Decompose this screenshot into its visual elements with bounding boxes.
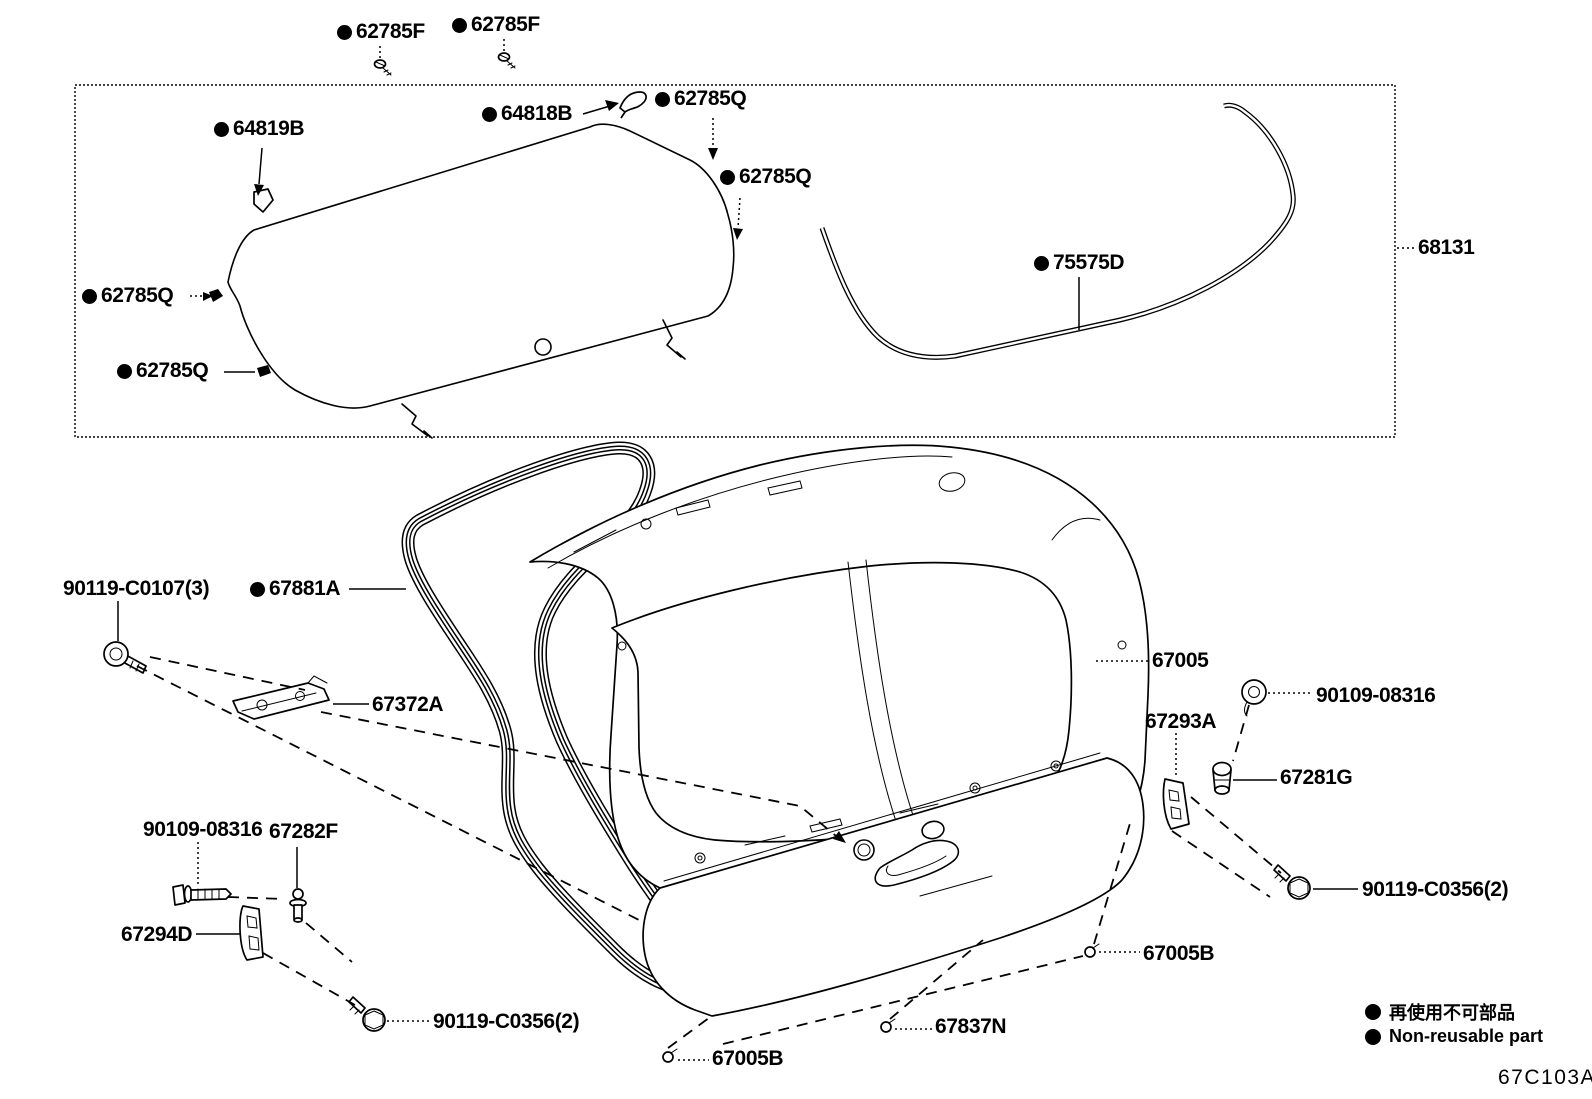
part-label-62785Q-left-upper[interactable]: 62785Q	[82, 284, 173, 308]
part-label-90119-C0107[interactable]: 90119-C0107(3)	[63, 577, 209, 601]
non-reusable-dot	[214, 122, 229, 137]
non-reusable-dot	[1365, 1029, 1381, 1045]
part-number: 75575D	[1053, 251, 1124, 275]
part-number: 67005B	[712, 1047, 783, 1071]
part-number: 62785Q	[739, 165, 811, 189]
non-reusable-dot	[1365, 1004, 1381, 1020]
non-reusable-dot	[250, 582, 265, 597]
non-reusable-dot	[720, 170, 735, 185]
screw-62785F-icon	[375, 53, 516, 75]
non-reusable-dot	[337, 25, 352, 40]
bolt-90119-C0356-left-icon	[349, 997, 385, 1031]
part-number: 67005B	[1143, 942, 1214, 966]
bolt-90109-08316-icon	[173, 885, 231, 905]
hinge-67294D	[240, 906, 263, 960]
part-number: 67281G	[1280, 766, 1352, 790]
non-reusable-dot	[482, 107, 497, 122]
part-number: 67005	[1152, 649, 1208, 673]
back-window-moulding	[822, 105, 1293, 357]
bolt-90119-C0356-right-icon	[1274, 865, 1310, 899]
part-number: 67881A	[269, 577, 340, 601]
non-reusable-dot	[82, 289, 97, 304]
legend-text-en: Non-reusable part	[1389, 1026, 1543, 1047]
clip-67837N-icon	[881, 1019, 895, 1032]
part-label-62785Q-top[interactable]: 62785Q	[655, 87, 746, 111]
part-label-90109-08316-left[interactable]: 90109-08316	[143, 818, 262, 842]
clip-67005B-right-icon	[1085, 944, 1099, 957]
part-label-67005B-right[interactable]: 67005B	[1143, 942, 1214, 966]
part-label-67294D[interactable]: 67294D	[121, 923, 192, 947]
part-label-67005[interactable]: 67005	[1152, 649, 1208, 673]
legend-text-jp: 再使用不可部品	[1389, 999, 1515, 1025]
part-number: 90119-C0107(3)	[63, 577, 209, 601]
part-label-67282F[interactable]: 67282F	[269, 820, 338, 844]
grommet-90109-08316-icon	[1242, 680, 1266, 716]
part-number: 90109-08316	[143, 818, 262, 842]
part-label-68131[interactable]: 68131	[1418, 236, 1474, 260]
part-number: 67282F	[269, 820, 338, 844]
legend-non-reusable-jp: 再使用不可部品	[1365, 999, 1515, 1025]
defogger-terminal-icon	[402, 320, 685, 438]
part-number: 67372A	[372, 693, 443, 717]
part-label-67881A[interactable]: 67881A	[250, 577, 340, 601]
part-label-62785Q-left-lower[interactable]: 62785Q	[117, 359, 208, 383]
part-label-62785F-b[interactable]: 62785F	[452, 13, 540, 37]
back-glass	[209, 92, 734, 438]
part-label-67005B-left[interactable]: 67005B	[712, 1047, 783, 1071]
part-number: 90119-C0356(2)	[433, 1010, 579, 1034]
part-label-75575D[interactable]: 75575D	[1034, 251, 1124, 275]
non-reusable-dot	[655, 92, 670, 107]
part-label-67837N[interactable]: 67837N	[935, 1015, 1006, 1039]
part-number: 90109-08316	[1316, 684, 1435, 708]
clip-67005B-left-icon	[663, 1049, 677, 1062]
non-reusable-dot	[452, 18, 467, 33]
part-number: 67837N	[935, 1015, 1006, 1039]
stud-67282F-icon	[290, 889, 306, 922]
hinge-67372A	[233, 676, 329, 719]
part-label-67372A[interactable]: 67372A	[372, 693, 443, 717]
part-label-67293A[interactable]: 67293A	[1145, 710, 1216, 734]
part-number: 64819B	[233, 117, 304, 141]
part-label-67281G[interactable]: 67281G	[1280, 766, 1352, 790]
part-label-62785Q-right[interactable]: 62785Q	[720, 165, 811, 189]
part-label-90119-C0356-left[interactable]: 90119-C0356(2)	[433, 1010, 579, 1034]
part-label-64818B[interactable]: 64818B	[482, 102, 572, 126]
part-label-64819B[interactable]: 64819B	[214, 117, 304, 141]
parts-diagram-page: 62785F 62785F 64818B 62785Q 64819B 62785…	[0, 0, 1592, 1099]
diagram-code: 67C103A	[1498, 1066, 1592, 1090]
part-number: 64818B	[501, 102, 572, 126]
non-reusable-dot	[117, 364, 132, 379]
part-number: 62785Q	[674, 87, 746, 111]
part-number: 90119-C0356(2)	[1362, 878, 1508, 902]
part-label-90109-08316-right[interactable]: 90109-08316	[1316, 684, 1435, 708]
part-label-62785F-a[interactable]: 62785F	[337, 20, 425, 44]
part-number: 68131	[1418, 236, 1474, 260]
part-number: 67294D	[121, 923, 192, 947]
part-number: 62785F	[471, 13, 540, 37]
part-label-90119-C0356-right[interactable]: 90119-C0356(2)	[1362, 878, 1508, 902]
part-number: 62785Q	[136, 359, 208, 383]
legend-non-reusable-en: Non-reusable part	[1365, 1026, 1543, 1047]
bracket-67293A	[1163, 779, 1189, 829]
cushion-67281G	[1213, 763, 1231, 795]
non-reusable-dot	[1034, 256, 1049, 271]
part-number: 67293A	[1145, 710, 1216, 734]
part-number: 62785Q	[101, 284, 173, 308]
part-number: 62785F	[356, 20, 425, 44]
